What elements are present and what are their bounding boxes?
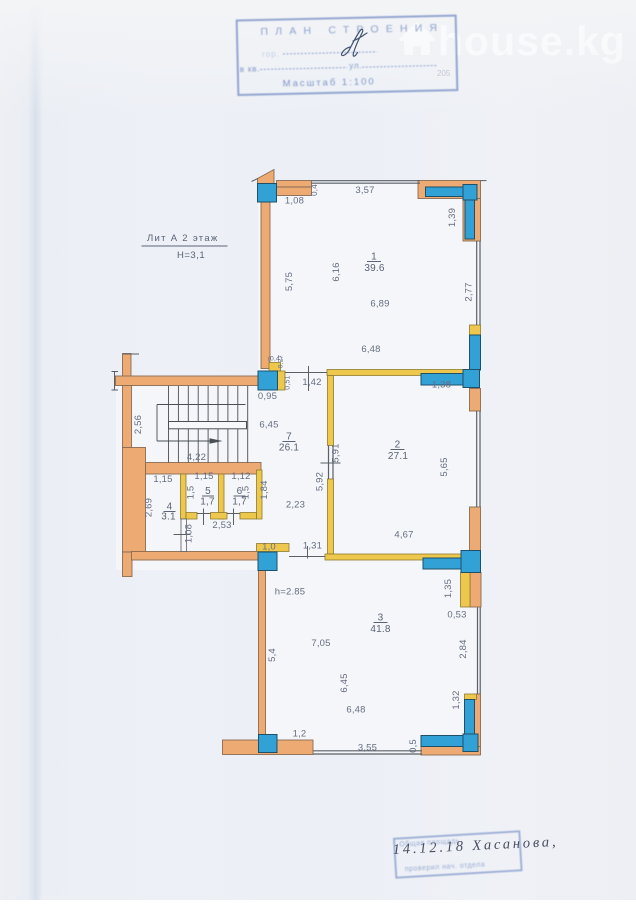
svg-text:3,55: 3,55: [358, 743, 377, 754]
svg-text:2,56: 2,56: [133, 415, 144, 434]
svg-text:1,31: 1,31: [303, 541, 322, 552]
svg-text:6: 6: [237, 486, 243, 497]
svg-text:7,05: 7,05: [311, 638, 330, 649]
svg-text:2,69: 2,69: [144, 498, 155, 517]
svg-text:2,84: 2,84: [458, 639, 469, 658]
svg-text:гор.: гор.: [262, 50, 280, 59]
svg-text:6,45: 6,45: [259, 420, 278, 431]
svg-text:3: 3: [378, 613, 384, 624]
svg-text:0,5: 0,5: [408, 739, 419, 753]
svg-text:Масштаб 1:100: Масштаб 1:100: [283, 76, 376, 89]
svg-text:39.6: 39.6: [364, 263, 385, 274]
svg-text:0,95: 0,95: [258, 391, 277, 402]
svg-text:2,23: 2,23: [286, 500, 305, 511]
svg-text:7: 7: [286, 432, 292, 443]
svg-text:6,16: 6,16: [331, 262, 342, 281]
svg-text:Лит А 2 этаж: Лит А 2 этаж: [147, 233, 219, 244]
svg-text:4,22: 4,22: [187, 452, 206, 463]
svg-text:1,5: 1,5: [186, 486, 197, 500]
svg-text:2,77: 2,77: [464, 282, 475, 301]
svg-text:5,91: 5,91: [331, 443, 342, 462]
svg-text:5,75: 5,75: [284, 272, 295, 291]
svg-text:1,15: 1,15: [194, 471, 213, 482]
svg-text:6,48: 6,48: [361, 344, 380, 355]
svg-text:1,7: 1,7: [232, 497, 247, 508]
svg-text:41.8: 41.8: [370, 624, 391, 635]
svg-text:1,39: 1,39: [447, 208, 458, 227]
svg-text:house.kg: house.kg: [438, 18, 626, 64]
svg-text:2,53: 2,53: [212, 520, 231, 531]
svg-text:0,27: 0,27: [278, 355, 285, 369]
svg-text:0,53: 0,53: [447, 610, 466, 621]
svg-text:3.1: 3.1: [161, 512, 176, 523]
svg-text:2: 2: [395, 440, 401, 451]
svg-text:1,08: 1,08: [285, 196, 304, 207]
svg-text:1,84: 1,84: [259, 480, 270, 499]
svg-text:1,7: 1,7: [200, 497, 215, 508]
svg-text:1,38: 1,38: [432, 380, 451, 391]
svg-text:26.1: 26.1: [279, 443, 300, 454]
svg-text:1,12: 1,12: [231, 471, 250, 482]
svg-text:5: 5: [205, 486, 211, 497]
svg-text:1,42: 1,42: [302, 377, 321, 388]
svg-text:6,48: 6,48: [346, 705, 365, 716]
svg-text:1,32: 1,32: [451, 690, 462, 709]
svg-text:4,67: 4,67: [394, 530, 413, 541]
svg-text:5,65: 5,65: [439, 457, 450, 476]
svg-text:1: 1: [371, 252, 377, 263]
svg-text:0,51: 0,51: [285, 375, 292, 389]
svg-text:1,08: 1,08: [184, 524, 195, 543]
svg-text:205: 205: [437, 69, 451, 78]
svg-text:1,0: 1,0: [262, 542, 276, 553]
svg-text:в кв.: в кв.: [240, 64, 261, 73]
svg-text:0,4: 0,4: [310, 184, 319, 196]
svg-text:h=2.85: h=2.85: [275, 587, 306, 598]
svg-text:6,89: 6,89: [370, 299, 389, 310]
svg-text:Н=3,1: Н=3,1: [177, 250, 205, 261]
svg-text:5,92: 5,92: [315, 472, 326, 491]
svg-text:1,15: 1,15: [153, 474, 172, 485]
svg-text:ул.: ул.: [349, 61, 362, 70]
svg-text:27.1: 27.1: [388, 451, 409, 462]
svg-text:6,45: 6,45: [339, 673, 350, 692]
svg-text:5,4: 5,4: [267, 648, 278, 662]
svg-text:3,57: 3,57: [355, 185, 374, 196]
svg-text:1,35: 1,35: [443, 579, 454, 598]
svg-text:1,2: 1,2: [293, 729, 307, 740]
